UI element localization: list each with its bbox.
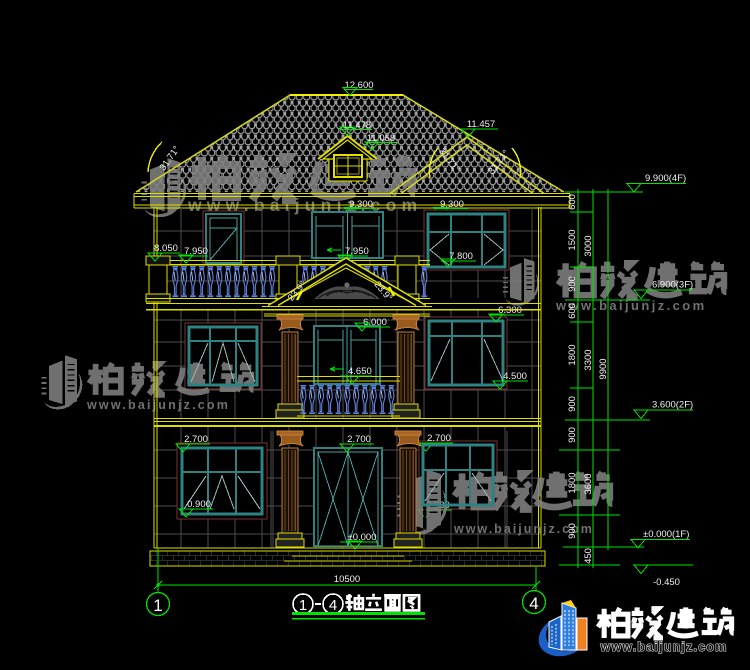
svg-text:600: 600 bbox=[567, 194, 578, 210]
svg-text:900: 900 bbox=[567, 523, 578, 539]
svg-text:4.500: 4.500 bbox=[503, 371, 527, 382]
svg-text:±0.000(1F): ±0.000(1F) bbox=[643, 529, 689, 540]
svg-text:3000: 3000 bbox=[583, 235, 594, 256]
svg-text:2.700: 2.700 bbox=[184, 434, 208, 445]
svg-text:1800: 1800 bbox=[567, 344, 578, 365]
svg-text:1800: 1800 bbox=[567, 472, 578, 493]
svg-text:1500: 1500 bbox=[567, 229, 578, 250]
svg-text:11.457: 11.457 bbox=[467, 119, 495, 130]
svg-text:6.900(3F): 6.900(3F) bbox=[652, 280, 693, 291]
svg-text:600: 600 bbox=[567, 303, 578, 319]
svg-text:4: 4 bbox=[329, 597, 337, 614]
svg-text:4.650: 4.650 bbox=[348, 366, 372, 377]
svg-text:1: 1 bbox=[299, 597, 307, 614]
svg-text:900: 900 bbox=[567, 396, 578, 412]
svg-text:4: 4 bbox=[529, 594, 538, 613]
svg-text:7.800: 7.800 bbox=[449, 251, 473, 262]
svg-text:450: 450 bbox=[583, 548, 594, 564]
svg-text:9900: 9900 bbox=[598, 358, 609, 379]
svg-text:www.baijunjz.com: www.baijunjz.com bbox=[86, 398, 230, 412]
svg-text:900: 900 bbox=[567, 427, 578, 443]
svg-text:9.900(4F): 9.900(4F) bbox=[645, 173, 686, 184]
svg-text:900: 900 bbox=[567, 276, 578, 292]
svg-text:www.baijunjz.com: www.baijunjz.com bbox=[599, 640, 727, 654]
svg-text:1: 1 bbox=[153, 596, 162, 615]
svg-text:3.600(2F): 3.600(2F) bbox=[652, 400, 693, 411]
svg-text:8.050: 8.050 bbox=[154, 243, 178, 254]
svg-text:0.900: 0.900 bbox=[187, 499, 211, 510]
svg-text:3300: 3300 bbox=[583, 349, 594, 370]
svg-text:2.700: 2.700 bbox=[347, 434, 371, 445]
svg-text:10500: 10500 bbox=[334, 574, 360, 585]
svg-text:2.700: 2.700 bbox=[427, 433, 451, 444]
svg-text:-0.450: -0.450 bbox=[653, 577, 680, 588]
svg-text:3600: 3600 bbox=[583, 473, 594, 494]
